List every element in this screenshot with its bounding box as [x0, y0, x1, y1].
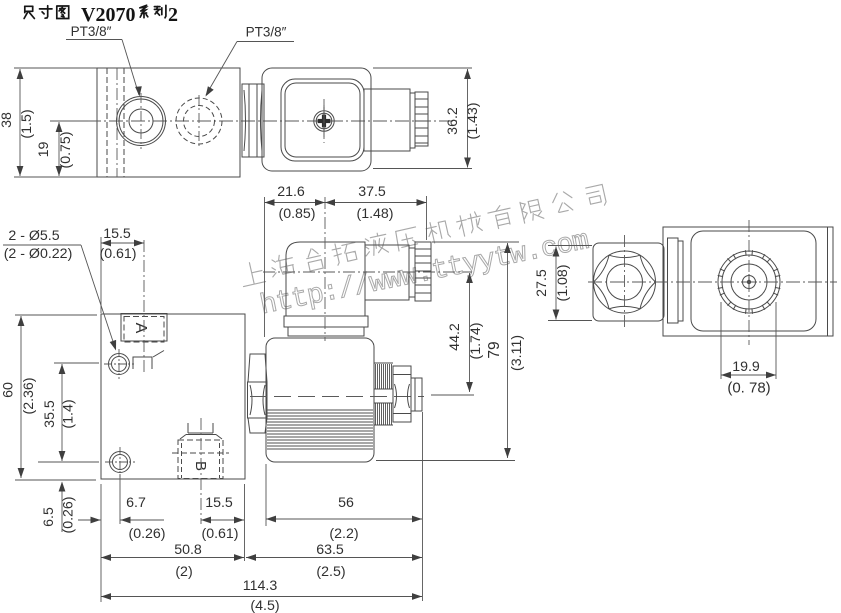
svg-text:A: A [132, 323, 149, 334]
svg-text:114.3: 114.3 [243, 578, 278, 594]
svg-text:(1.43): (1.43) [465, 102, 481, 139]
svg-text:PT3/8″: PT3/8″ [71, 24, 112, 39]
svg-text:63.5: 63.5 [316, 542, 344, 558]
svg-text:(1.48): (1.48) [356, 206, 393, 222]
svg-text:(0.61): (0.61) [201, 526, 238, 542]
svg-text:(1.08): (1.08) [555, 264, 571, 301]
svg-text:19: 19 [36, 142, 52, 158]
svg-text:6.7: 6.7 [126, 495, 146, 511]
svg-text:(2 - Ø0.22): (2 - Ø0.22) [4, 246, 73, 262]
svg-text:(1.5): (1.5) [19, 109, 35, 138]
svg-text:(2.2): (2.2) [329, 526, 358, 542]
svg-text:(0.26): (0.26) [61, 496, 77, 533]
svg-text:60: 60 [1, 382, 17, 398]
svg-text:6.5: 6.5 [41, 507, 57, 527]
svg-text:(2.36): (2.36) [21, 377, 37, 414]
svg-text:37.5: 37.5 [358, 184, 386, 200]
svg-text:B: B [192, 461, 209, 471]
svg-text:35.5: 35.5 [42, 400, 58, 428]
svg-text:(3.11): (3.11) [509, 335, 525, 371]
svg-text:(1.74): (1.74) [468, 322, 484, 359]
svg-text:(2): (2) [175, 564, 192, 580]
svg-text:44.2: 44.2 [447, 323, 463, 351]
svg-text:(0.61): (0.61) [99, 246, 136, 262]
svg-text:27.5: 27.5 [534, 269, 550, 297]
svg-text:(0. 78): (0. 78) [727, 380, 770, 397]
svg-text:19.9: 19.9 [732, 359, 760, 375]
svg-text:50.8: 50.8 [174, 542, 202, 558]
svg-text:2 - Ø5.5: 2 - Ø5.5 [8, 228, 59, 244]
svg-text:56: 56 [338, 495, 354, 511]
svg-text:36.2: 36.2 [445, 107, 461, 135]
svg-text:15.5: 15.5 [103, 226, 131, 242]
svg-text:(2.5): (2.5) [316, 564, 345, 580]
svg-text:2: 2 [168, 4, 178, 26]
svg-text:(0.26): (0.26) [128, 526, 165, 542]
svg-text:(4.5): (4.5) [250, 598, 279, 613]
svg-text:(1.4): (1.4) [61, 399, 77, 428]
svg-text:(0.75): (0.75) [58, 131, 74, 168]
svg-text:V2070: V2070 [81, 4, 135, 26]
svg-text:38: 38 [0, 112, 15, 128]
svg-text:(0.85): (0.85) [278, 206, 315, 222]
svg-text:PT3/8″: PT3/8″ [246, 25, 287, 40]
svg-text:15.5: 15.5 [205, 495, 233, 511]
svg-text:79: 79 [486, 341, 503, 358]
svg-text:21.6: 21.6 [277, 184, 305, 200]
